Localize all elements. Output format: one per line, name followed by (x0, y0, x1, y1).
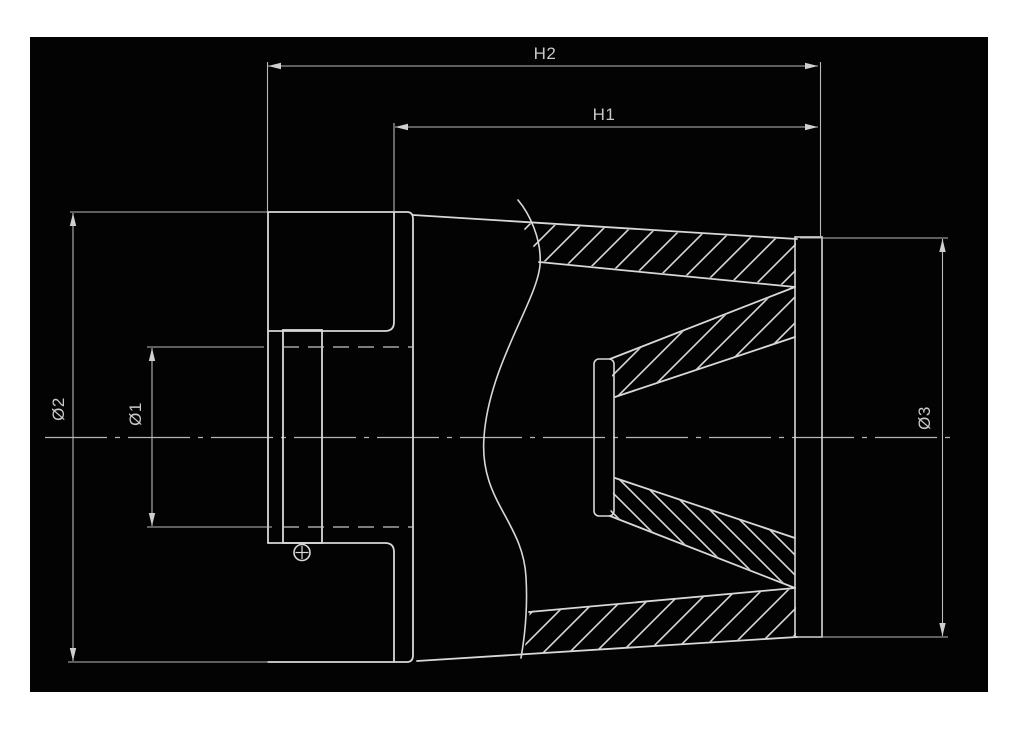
dimension-label-h2: H2 (534, 44, 557, 63)
dimension-label-d1: Ø1 (126, 402, 145, 426)
filter-cross-section-svg: H2 H1 Ø2 Ø1 Ø3 (0, 0, 1024, 736)
technical-drawing: H2 H1 Ø2 Ø1 Ø3 (0, 0, 1024, 736)
dimension-label-h1: H1 (593, 105, 616, 124)
dimension-label-d3: Ø3 (915, 406, 934, 430)
drawing-canvas (30, 37, 988, 692)
dimension-label-d2: Ø2 (49, 397, 68, 421)
clamp-screw-icon (294, 545, 310, 561)
